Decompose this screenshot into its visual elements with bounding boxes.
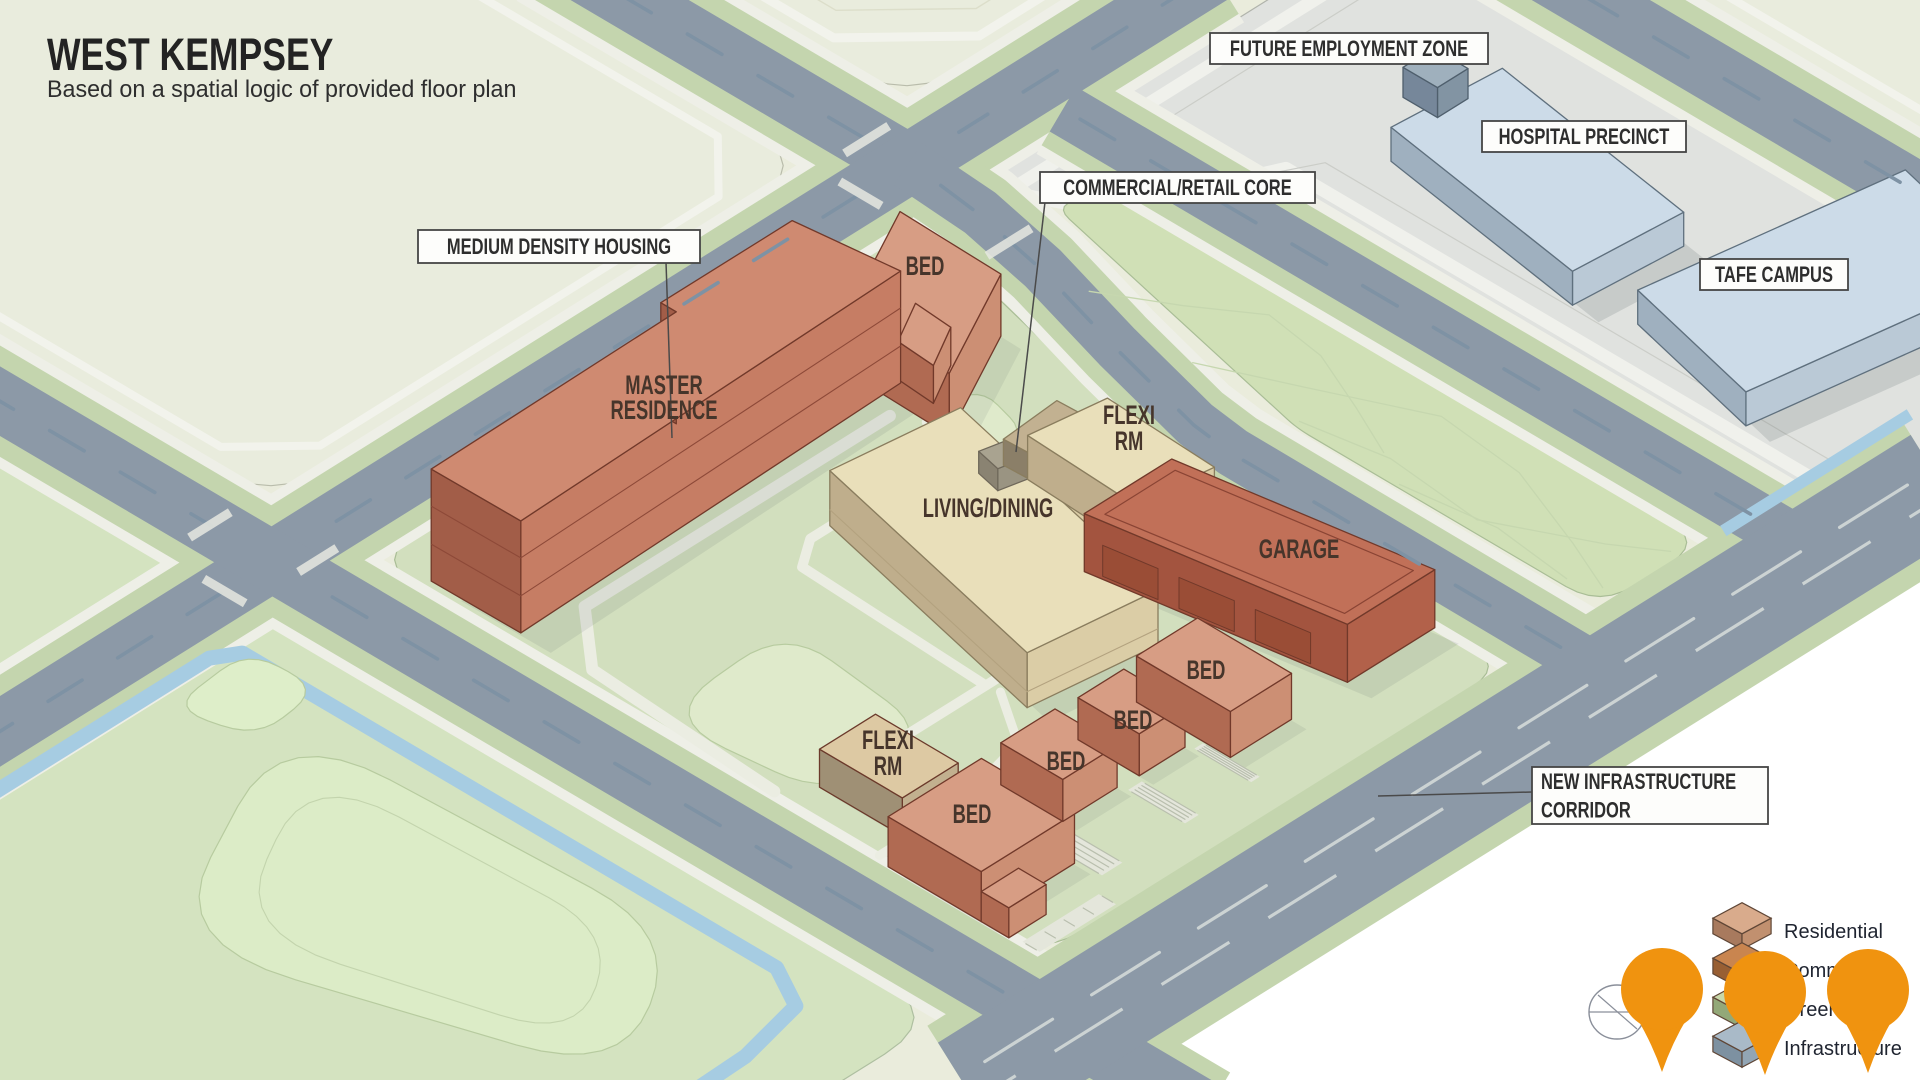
svg-text:GARAGE: GARAGE <box>1259 533 1340 563</box>
svg-text:BED: BED <box>1047 745 1086 775</box>
svg-text:RM: RM <box>1115 425 1144 455</box>
svg-text:HOSPITAL PRECINCT: HOSPITAL PRECINCT <box>1499 125 1670 150</box>
svg-text:LIVING/DINING: LIVING/DINING <box>923 492 1054 522</box>
svg-text:FUTURE EMPLOYMENT ZONE: FUTURE EMPLOYMENT ZONE <box>1230 37 1468 62</box>
svg-text:MEDIUM DENSITY HOUSING: MEDIUM DENSITY HOUSING <box>447 235 671 260</box>
svg-text:BED: BED <box>1187 654 1226 684</box>
svg-text:WEST KEMPSEY: WEST KEMPSEY <box>47 29 333 80</box>
svg-text:RM: RM <box>874 750 903 780</box>
svg-text:Based on a spatial logic of pr: Based on a spatial logic of provided flo… <box>47 77 516 103</box>
svg-text:COMMERCIAL/RETAIL CORE: COMMERCIAL/RETAIL CORE <box>1063 176 1291 201</box>
svg-text:TAFE CAMPUS: TAFE CAMPUS <box>1715 263 1833 288</box>
svg-text:BED: BED <box>906 250 945 280</box>
svg-text:CORRIDOR: CORRIDOR <box>1541 798 1631 823</box>
svg-text:BED: BED <box>953 798 992 828</box>
svg-text:Residential: Residential <box>1784 921 1883 943</box>
svg-text:Infrastructure: Infrastructure <box>1784 1038 1902 1060</box>
svg-text:BED: BED <box>1114 704 1153 734</box>
svg-text:NEW INFRASTRUCTURE: NEW INFRASTRUCTURE <box>1541 770 1736 795</box>
svg-text:RESIDENCE: RESIDENCE <box>610 394 717 424</box>
